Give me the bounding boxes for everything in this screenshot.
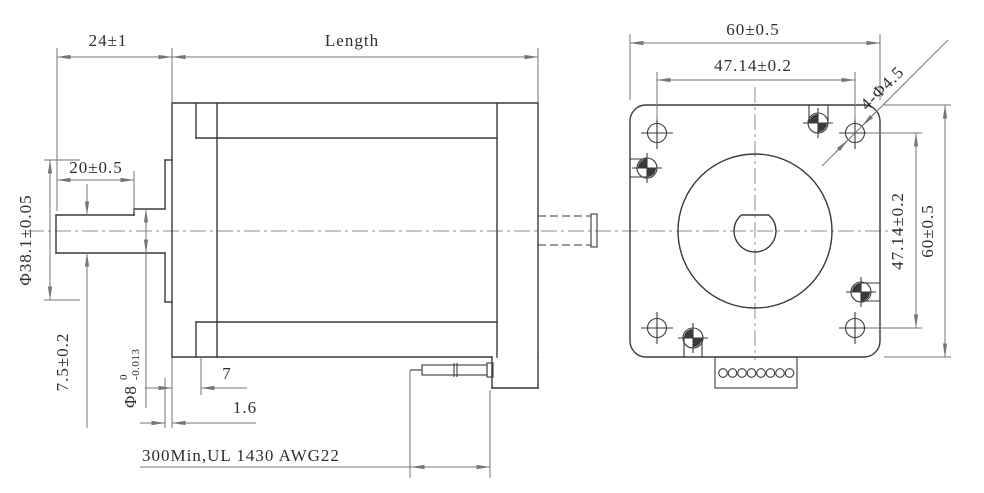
mounting-hole-bottom-left <box>641 312 673 344</box>
shaft-diameter-label: Φ8 0 -0.013 <box>118 349 142 408</box>
flat-to-bottom-label: 7.5±0.2 <box>53 333 72 392</box>
hole-spacing-h-label: 47.14±0.2 <box>714 56 792 75</box>
pilot-diameter-label: Φ38.1±0.05 <box>16 194 35 285</box>
assembly-screw-bottom <box>678 323 708 357</box>
cable-spec-label: 300Min,UL 1430 AWG22 <box>142 446 340 465</box>
assembly-screw-top <box>803 105 833 138</box>
body-length-label: Length <box>325 31 379 50</box>
shaft-extension-label: 24±1 <box>89 31 128 50</box>
pilot-height-label: 1.6 <box>233 398 257 417</box>
flat-length-label: 20±0.5 <box>69 158 123 177</box>
shaft-diameter-lower-tol: -0.013 <box>130 349 142 380</box>
side-view <box>56 103 597 478</box>
shaft-diameter-nominal: Φ8 <box>121 385 140 408</box>
technical-drawing: 24±1 Length 20±0.5 Φ38.1±0.05 7.5±0.2 Φ8… <box>0 0 984 493</box>
dimension-labels: 24±1 Length 20±0.5 Φ38.1±0.05 7.5±0.2 Φ8… <box>16 20 937 465</box>
shaft-diameter-upper-tol: 0 <box>118 374 130 380</box>
mounting-hole-bottom-right <box>839 312 871 344</box>
lead-wire-cable <box>410 363 493 478</box>
motor-body-outline <box>172 103 538 357</box>
hole-spacing-v-label: 47.14±0.2 <box>888 192 907 270</box>
connector-front <box>715 357 797 388</box>
assembly-screw-right <box>846 277 880 307</box>
dimension-lines-side-view <box>44 48 538 467</box>
assembly-screw-left <box>630 153 662 183</box>
front-height-label: 60±0.5 <box>918 204 937 258</box>
centerlines <box>28 87 897 360</box>
flange-thickness-label: 7 <box>222 364 232 383</box>
drawing-canvas: 24±1 Length 20±0.5 Φ38.1±0.05 7.5±0.2 Φ8… <box>0 0 984 493</box>
mounting-hole-top-left <box>641 117 673 149</box>
front-width-label: 60±0.5 <box>726 20 780 39</box>
connector-housing-side <box>492 357 538 388</box>
